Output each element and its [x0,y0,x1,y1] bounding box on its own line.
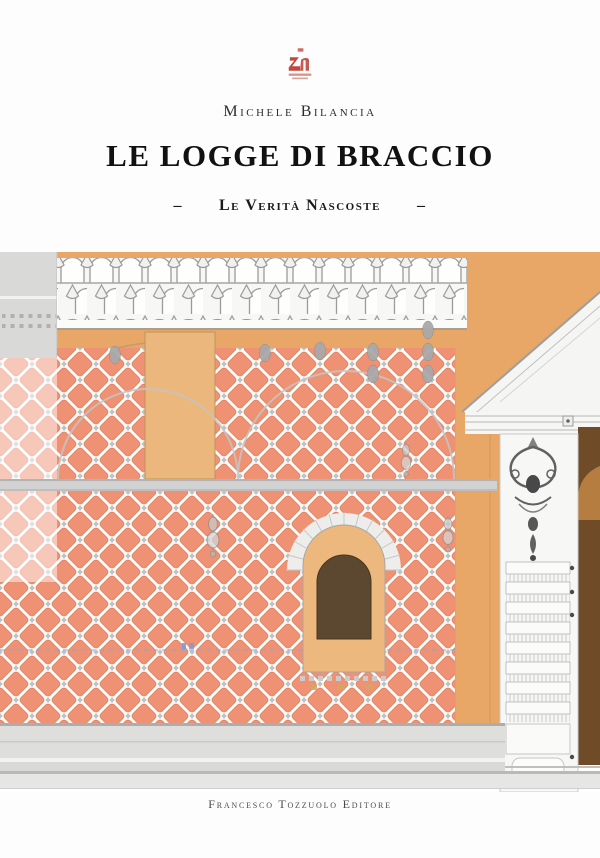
rusticated-panels [506,562,570,784]
book-subtitle: – Le Verità Nascoste – [0,197,600,215]
string-course [0,479,497,491]
publisher-logo-icon [283,46,317,82]
infill-panel [145,332,215,479]
subtitle-dash-left: – [173,197,183,215]
adjacent-wall-block [0,252,57,358]
author-name: Michele Bilancia [0,103,600,121]
roof-tile-cornice [57,258,467,329]
subtitle-text: Le Verità Nascoste [219,197,381,215]
facade-illustration [0,252,600,792]
subtitle-dash-right: – [417,197,427,215]
book-title: LE LOGGE DI BRACCIO [0,138,600,174]
book-cover: Michele Bilancia LE LOGGE DI BRACCIO – L… [0,0,600,858]
arched-window [286,512,402,690]
publisher-name: Francesco Tozzuolo Editore [0,797,600,812]
